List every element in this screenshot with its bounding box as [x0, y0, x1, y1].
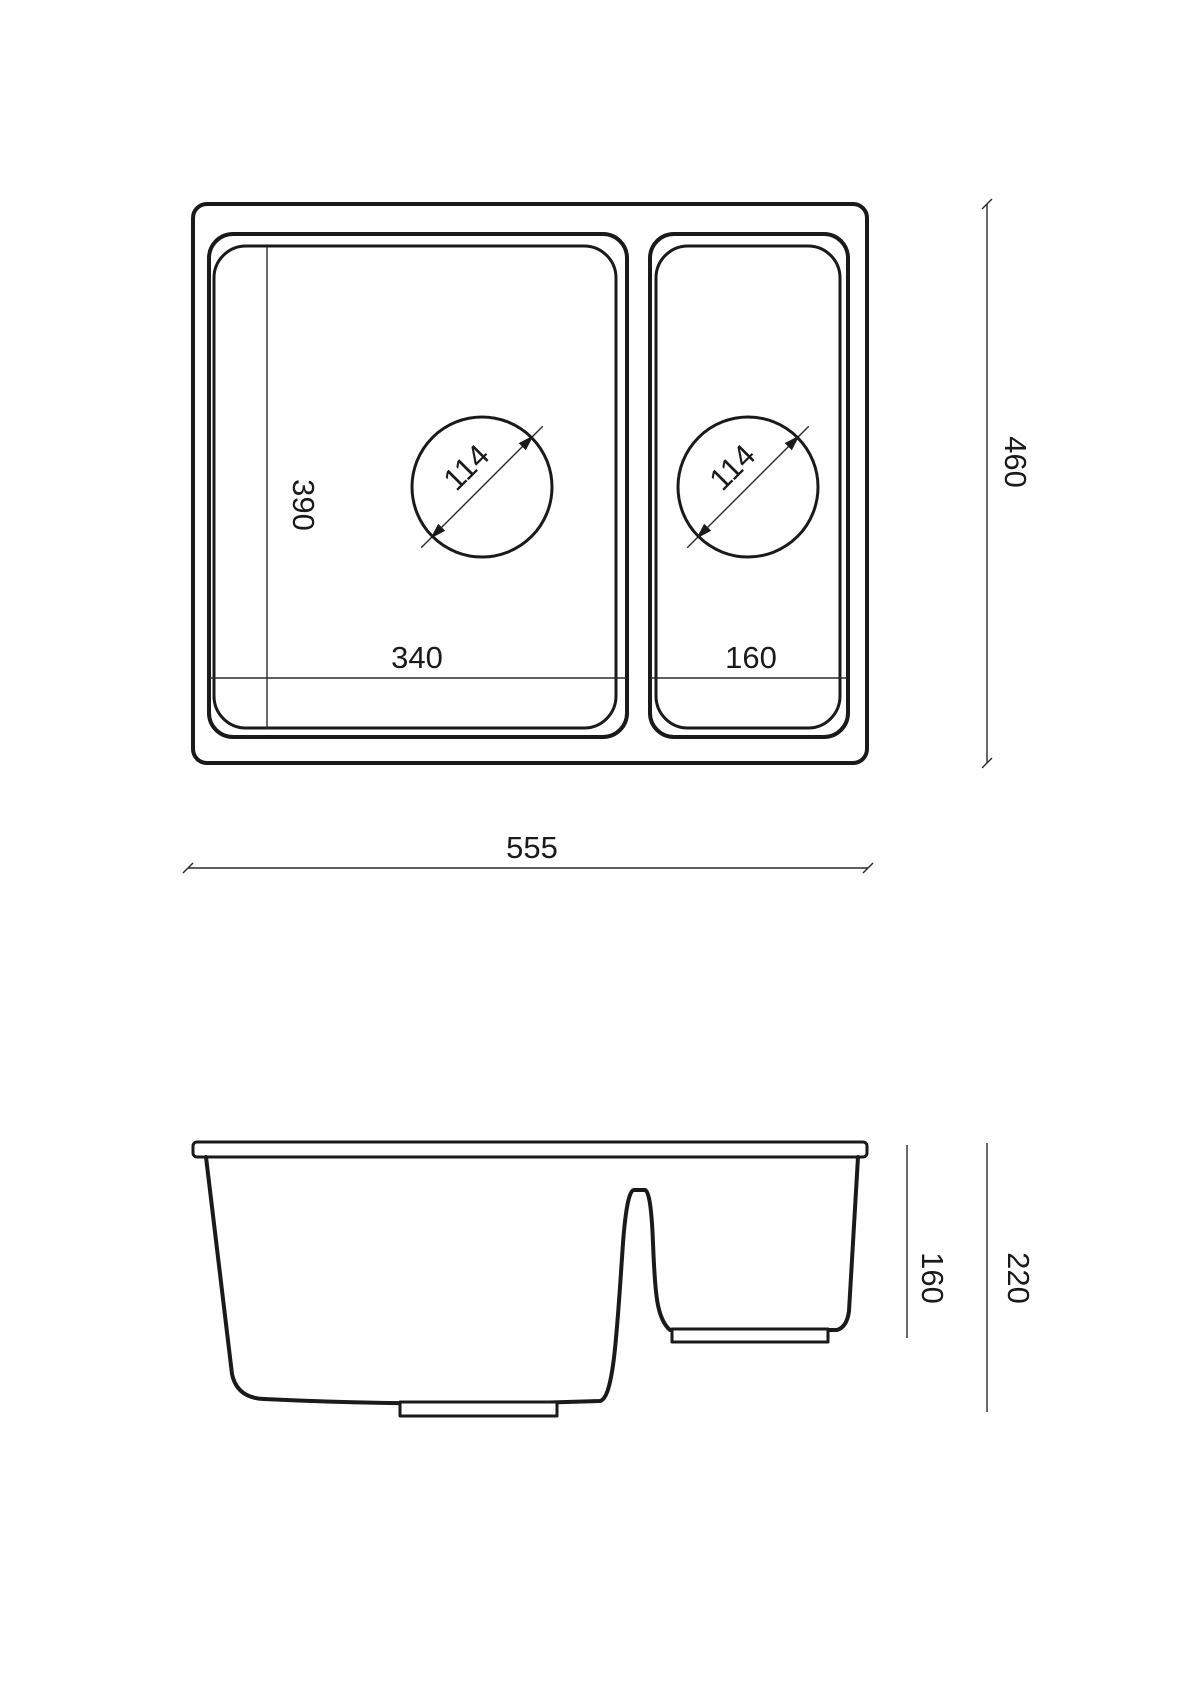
side-view: 160 220: [193, 1142, 1036, 1416]
right-drain: 114: [678, 417, 818, 557]
overall-height-label: 220: [1001, 1252, 1036, 1304]
overall-width-dimension: 555: [183, 830, 873, 873]
left-drain: 114: [412, 417, 552, 557]
overall-height-dimension: 220: [987, 1143, 1036, 1412]
right-drain-diameter-label: 114: [703, 438, 763, 498]
drawing-sheet: 114 114 340 160 390 460: [0, 0, 1190, 1683]
overall-depth-dimension: 460: [982, 199, 1033, 768]
top-view: 114 114 340 160 390 460: [183, 199, 1033, 873]
left-bowl-depth-label: 390: [286, 479, 321, 531]
left-drain-diameter-label: 114: [437, 438, 497, 498]
side-view-body-profile: [206, 1157, 858, 1404]
overall-width-label: 555: [506, 830, 558, 865]
side-view-rim: [193, 1142, 867, 1157]
overall-depth-label: 460: [998, 436, 1033, 488]
right-bowl-width-label: 160: [725, 640, 777, 675]
sink-dimension-drawing: 114 114 340 160 390 460: [0, 0, 1190, 1683]
small-bowl-depth-dimension: 160: [907, 1145, 950, 1338]
main-bowl-drain-boss: [400, 1402, 557, 1416]
left-bowl-width-label: 340: [391, 640, 443, 675]
small-bowl-depth-label: 160: [915, 1252, 950, 1304]
small-bowl-drain-boss: [672, 1329, 828, 1342]
